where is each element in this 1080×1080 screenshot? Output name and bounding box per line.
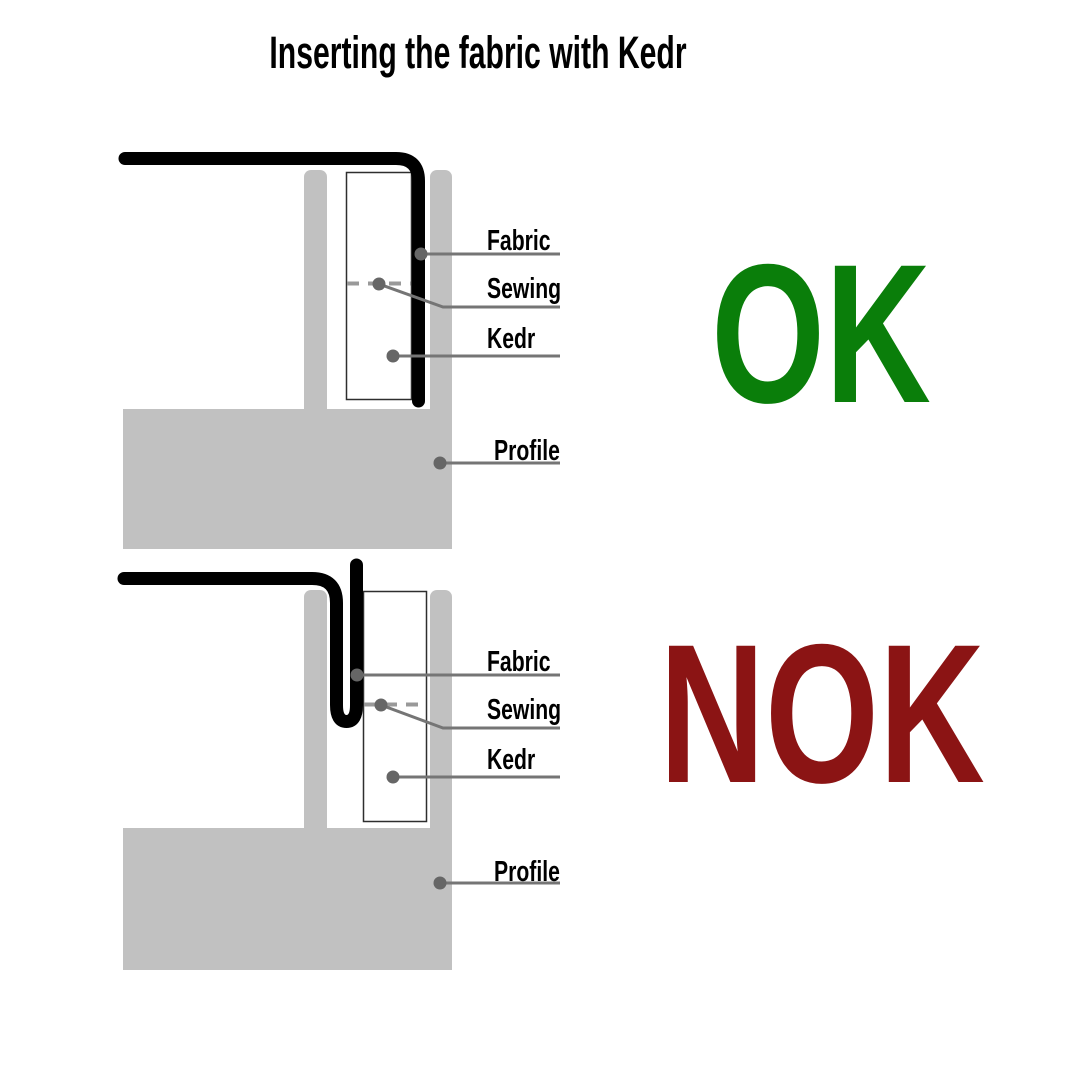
nok-label-profile: Profile (494, 858, 560, 887)
diagram-nok-drawing (0, 0, 1080, 1080)
nok-label-kedr: Kedr (487, 746, 535, 775)
nok-kedr-dot (387, 771, 400, 784)
nok-profile-dot (434, 877, 447, 890)
nok-sewing-dot (375, 699, 388, 712)
nok-fabric-dot (351, 669, 364, 682)
nok-profile-base (123, 828, 452, 970)
infographic-canvas: Inserting the fabric with Kedr Fabric Se… (0, 0, 1080, 1080)
nok-label-sewing: Sewing (487, 696, 561, 725)
nok-profile-right-post (430, 590, 452, 840)
nok-profile-left-post (304, 590, 327, 835)
nok-label-fabric: Fabric (487, 648, 551, 677)
verdict-nok-text: NOK (637, 615, 1007, 813)
